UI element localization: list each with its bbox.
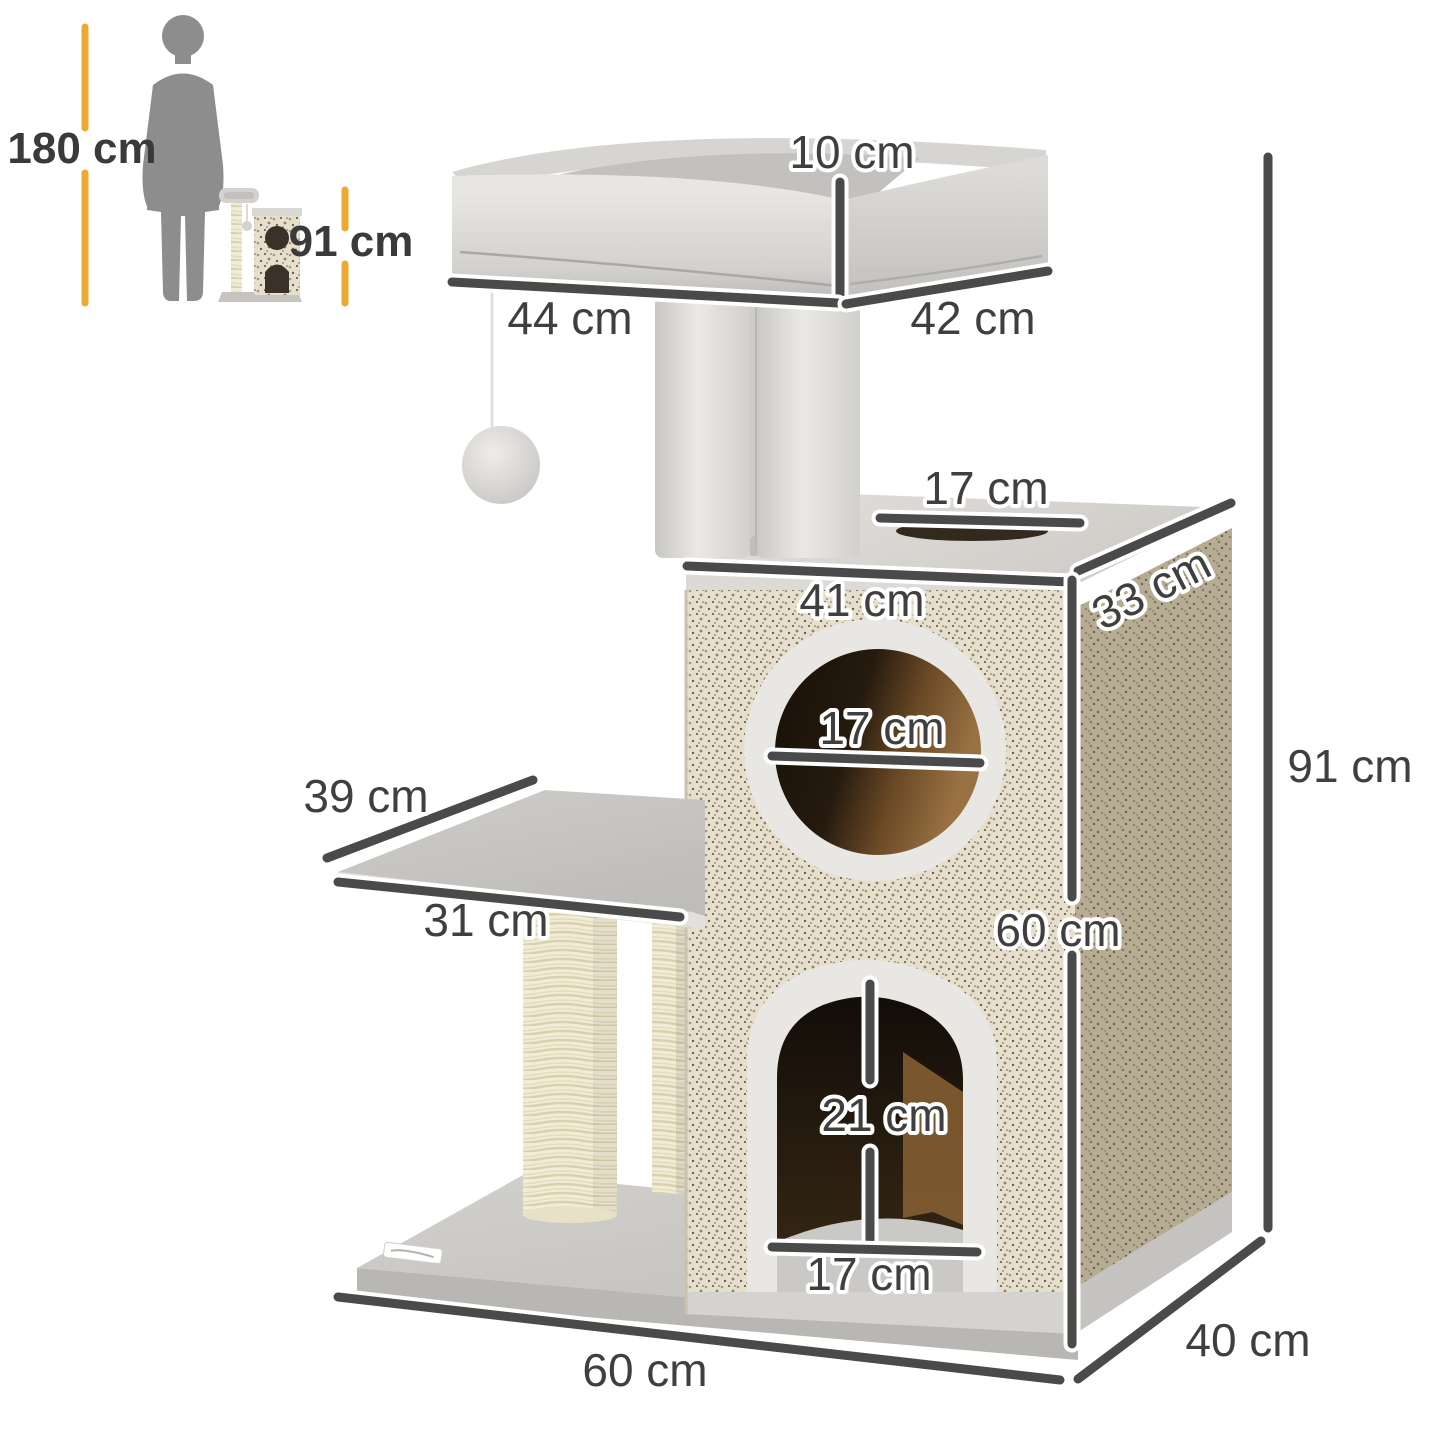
plush-ball [462, 426, 540, 504]
dim-overall-height: 91 cm [1268, 157, 1413, 1228]
mini-tree-height-label: 91 cm [289, 217, 414, 266]
svg-text:17 cm: 17 cm [923, 462, 1048, 514]
human-height-label: 180 cm [7, 124, 156, 173]
product-dimension-diagram: 180 cm 91 cm [0, 0, 1445, 1445]
scratching-post-rear [652, 922, 687, 1194]
svg-text:21 cm: 21 cm [821, 1089, 946, 1141]
svg-text:17 cm: 17 cm [819, 702, 944, 754]
size-comparison-inset: 180 cm 91 cm [7, 15, 413, 303]
svg-text:41 cm: 41 cm [799, 574, 924, 626]
scratching-post-main [523, 905, 617, 1223]
condo-box [655, 292, 1232, 1334]
svg-text:44 cm: 44 cm [507, 292, 632, 344]
svg-text:17 cm: 17 cm [806, 1248, 931, 1300]
bed-support-post-left [655, 296, 750, 558]
svg-text:42 cm: 42 cm [910, 292, 1035, 344]
diagram-svg: 180 cm 91 cm [0, 0, 1445, 1445]
bed-support-post-right [750, 292, 860, 558]
svg-text:10 cm: 10 cm [789, 126, 914, 178]
svg-text:31 cm: 31 cm [423, 894, 548, 946]
dim-top-hole-diameter: 17 cm [880, 462, 1080, 523]
svg-text:60 cm: 60 cm [995, 904, 1120, 956]
svg-text:39 cm: 39 cm [303, 770, 428, 822]
svg-text:60 cm: 60 cm [582, 1344, 707, 1396]
svg-text:40 cm: 40 cm [1185, 1314, 1310, 1366]
svg-text:91 cm: 91 cm [1287, 740, 1412, 792]
